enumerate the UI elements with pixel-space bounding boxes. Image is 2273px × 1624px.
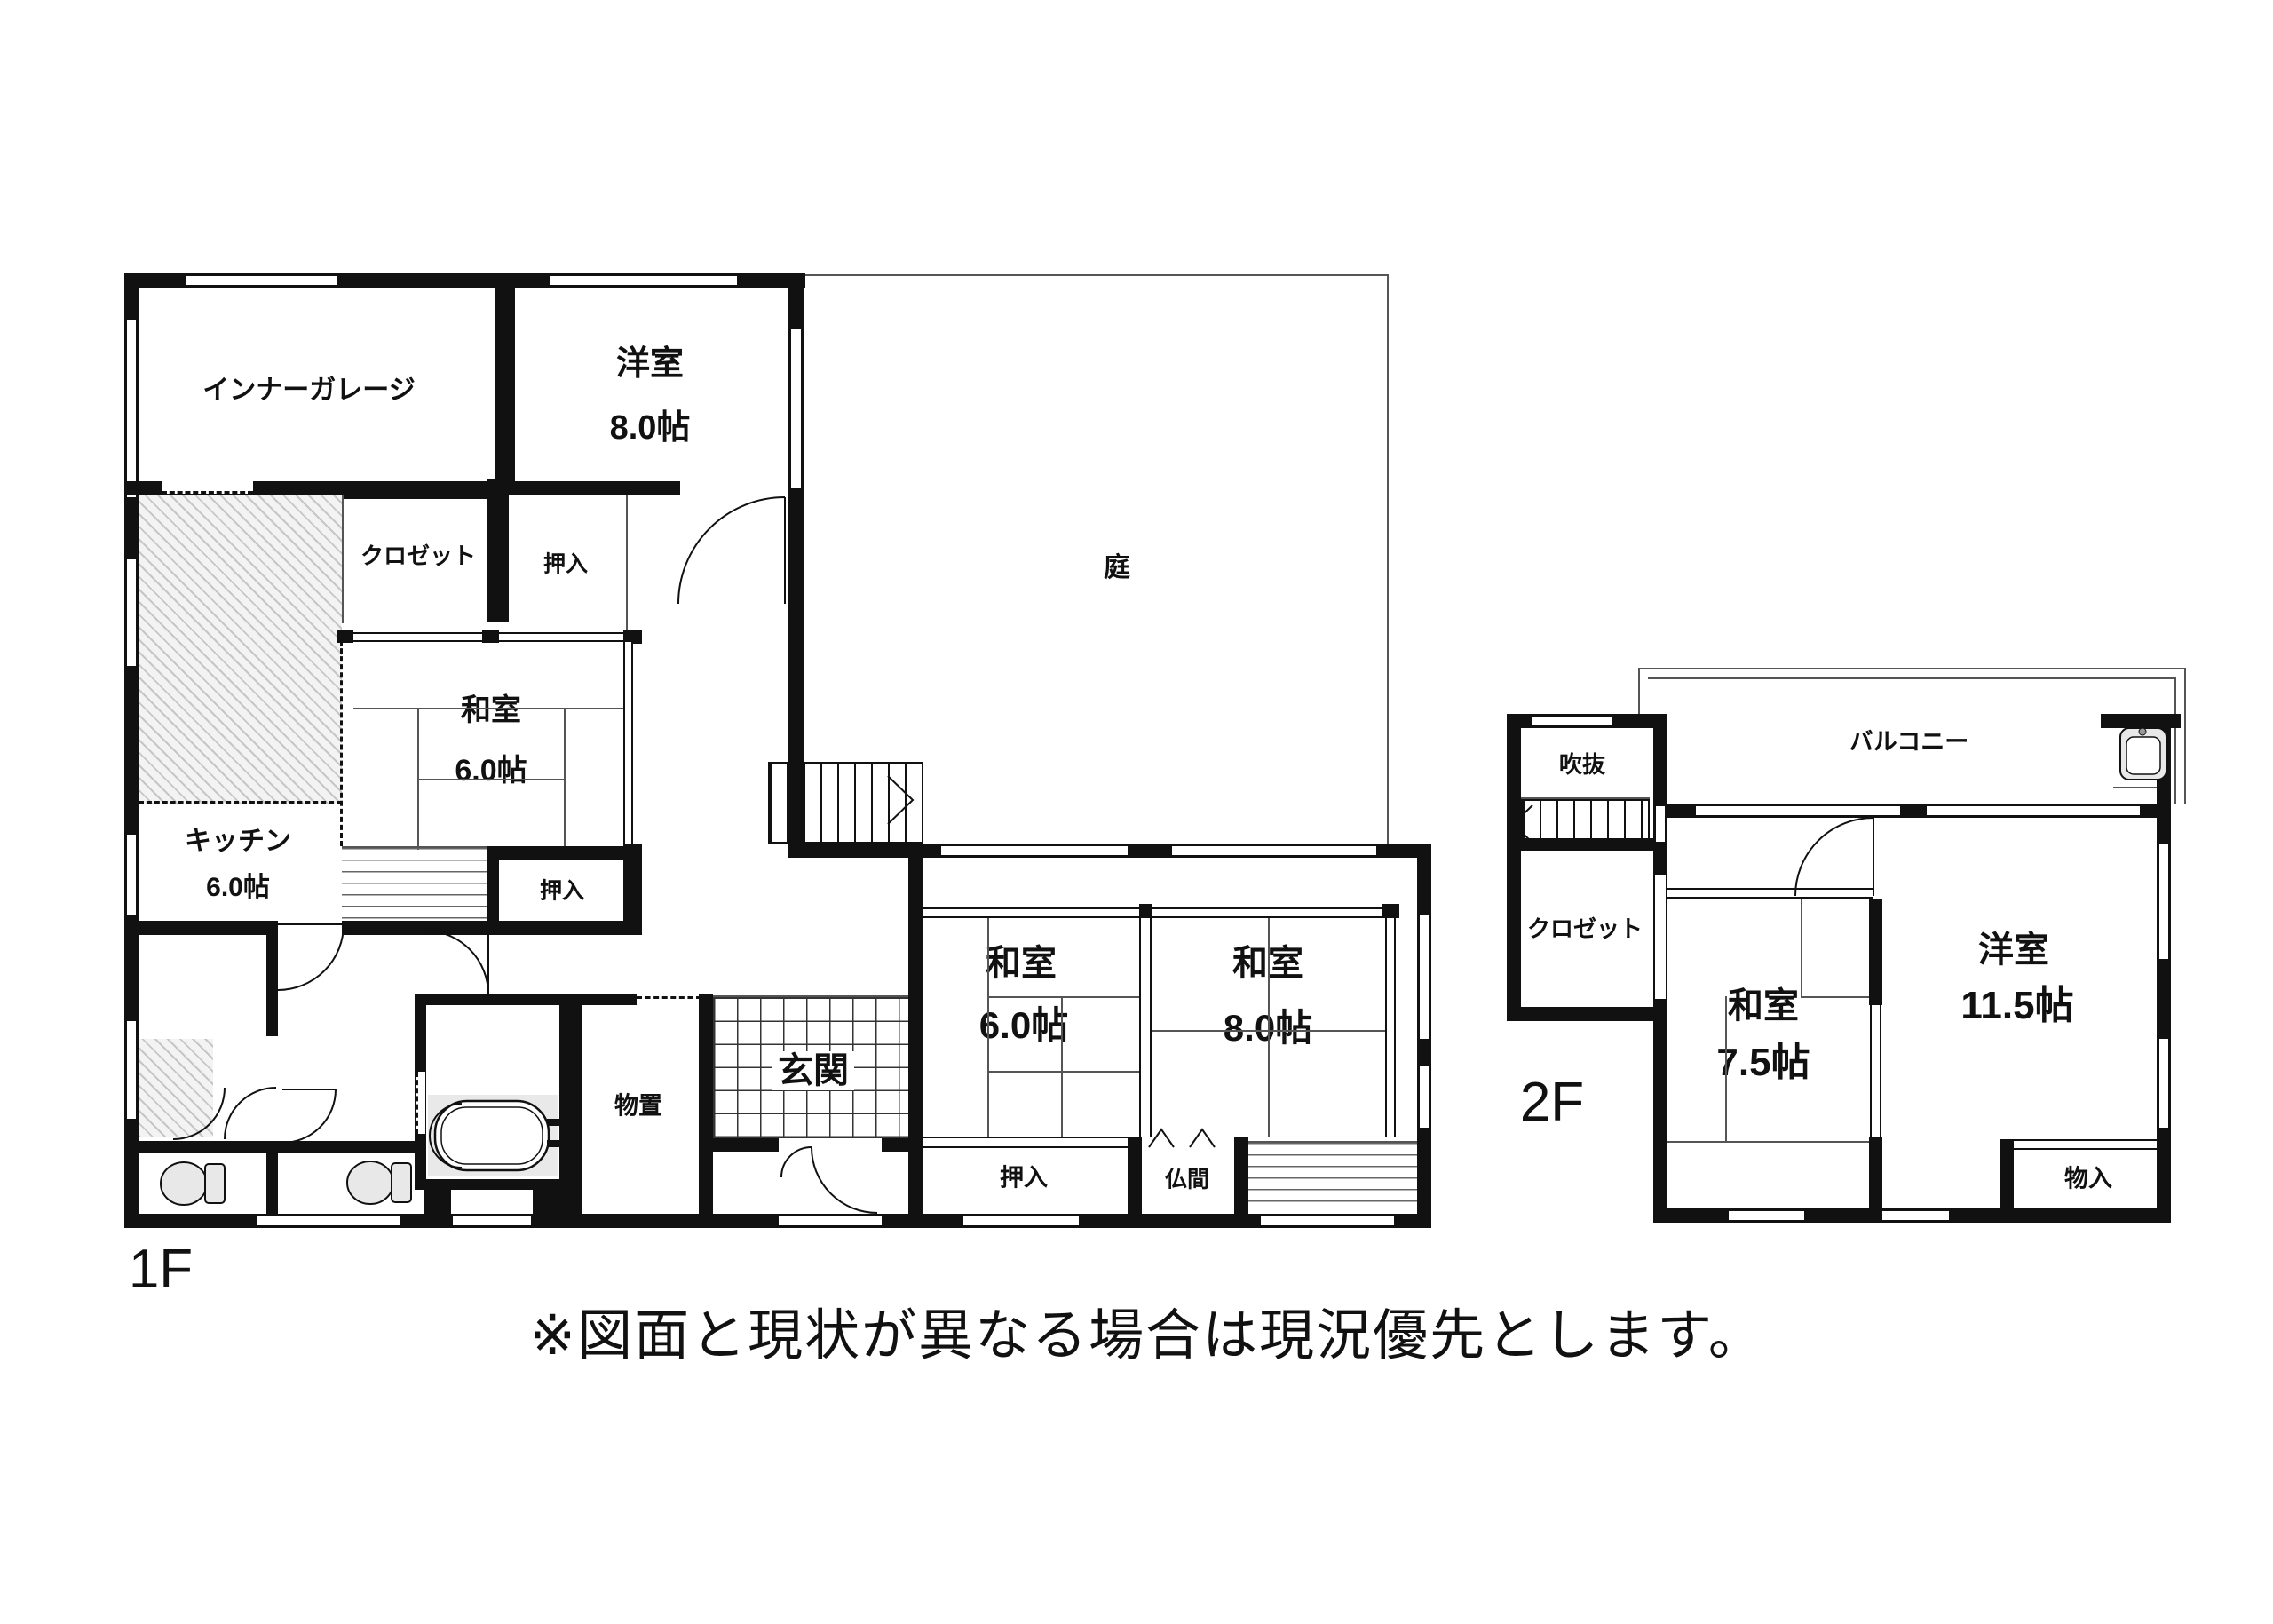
door-arc-westroom bbox=[678, 497, 785, 604]
toilet-icon bbox=[347, 1161, 411, 1204]
sink-icon bbox=[2120, 728, 2166, 780]
stairs-arrow-1f bbox=[888, 776, 913, 824]
overlay-graphics bbox=[0, 0, 2273, 1624]
door-arc-hall bbox=[278, 924, 344, 990]
stairs-arrow-2f bbox=[1513, 805, 1532, 843]
door-arc-toilet2 bbox=[282, 1089, 336, 1143]
door-arc-bath bbox=[424, 931, 488, 994]
entry-door-arc bbox=[812, 1147, 877, 1213]
entry-door-arc-small bbox=[781, 1147, 812, 1177]
butsuma-marks bbox=[1149, 1129, 1215, 1147]
door-arc-toilet1b bbox=[225, 1088, 276, 1139]
bathtub-icon bbox=[430, 1101, 559, 1170]
floorplan-canvas: 庭 インナーガレージ 洋室 8.0帖 クロゼット 押入 bbox=[0, 0, 2273, 1624]
door-arc-2f bbox=[1795, 818, 1873, 896]
door-arc-toilet1 bbox=[173, 1088, 225, 1139]
toilet-icon bbox=[161, 1162, 225, 1205]
